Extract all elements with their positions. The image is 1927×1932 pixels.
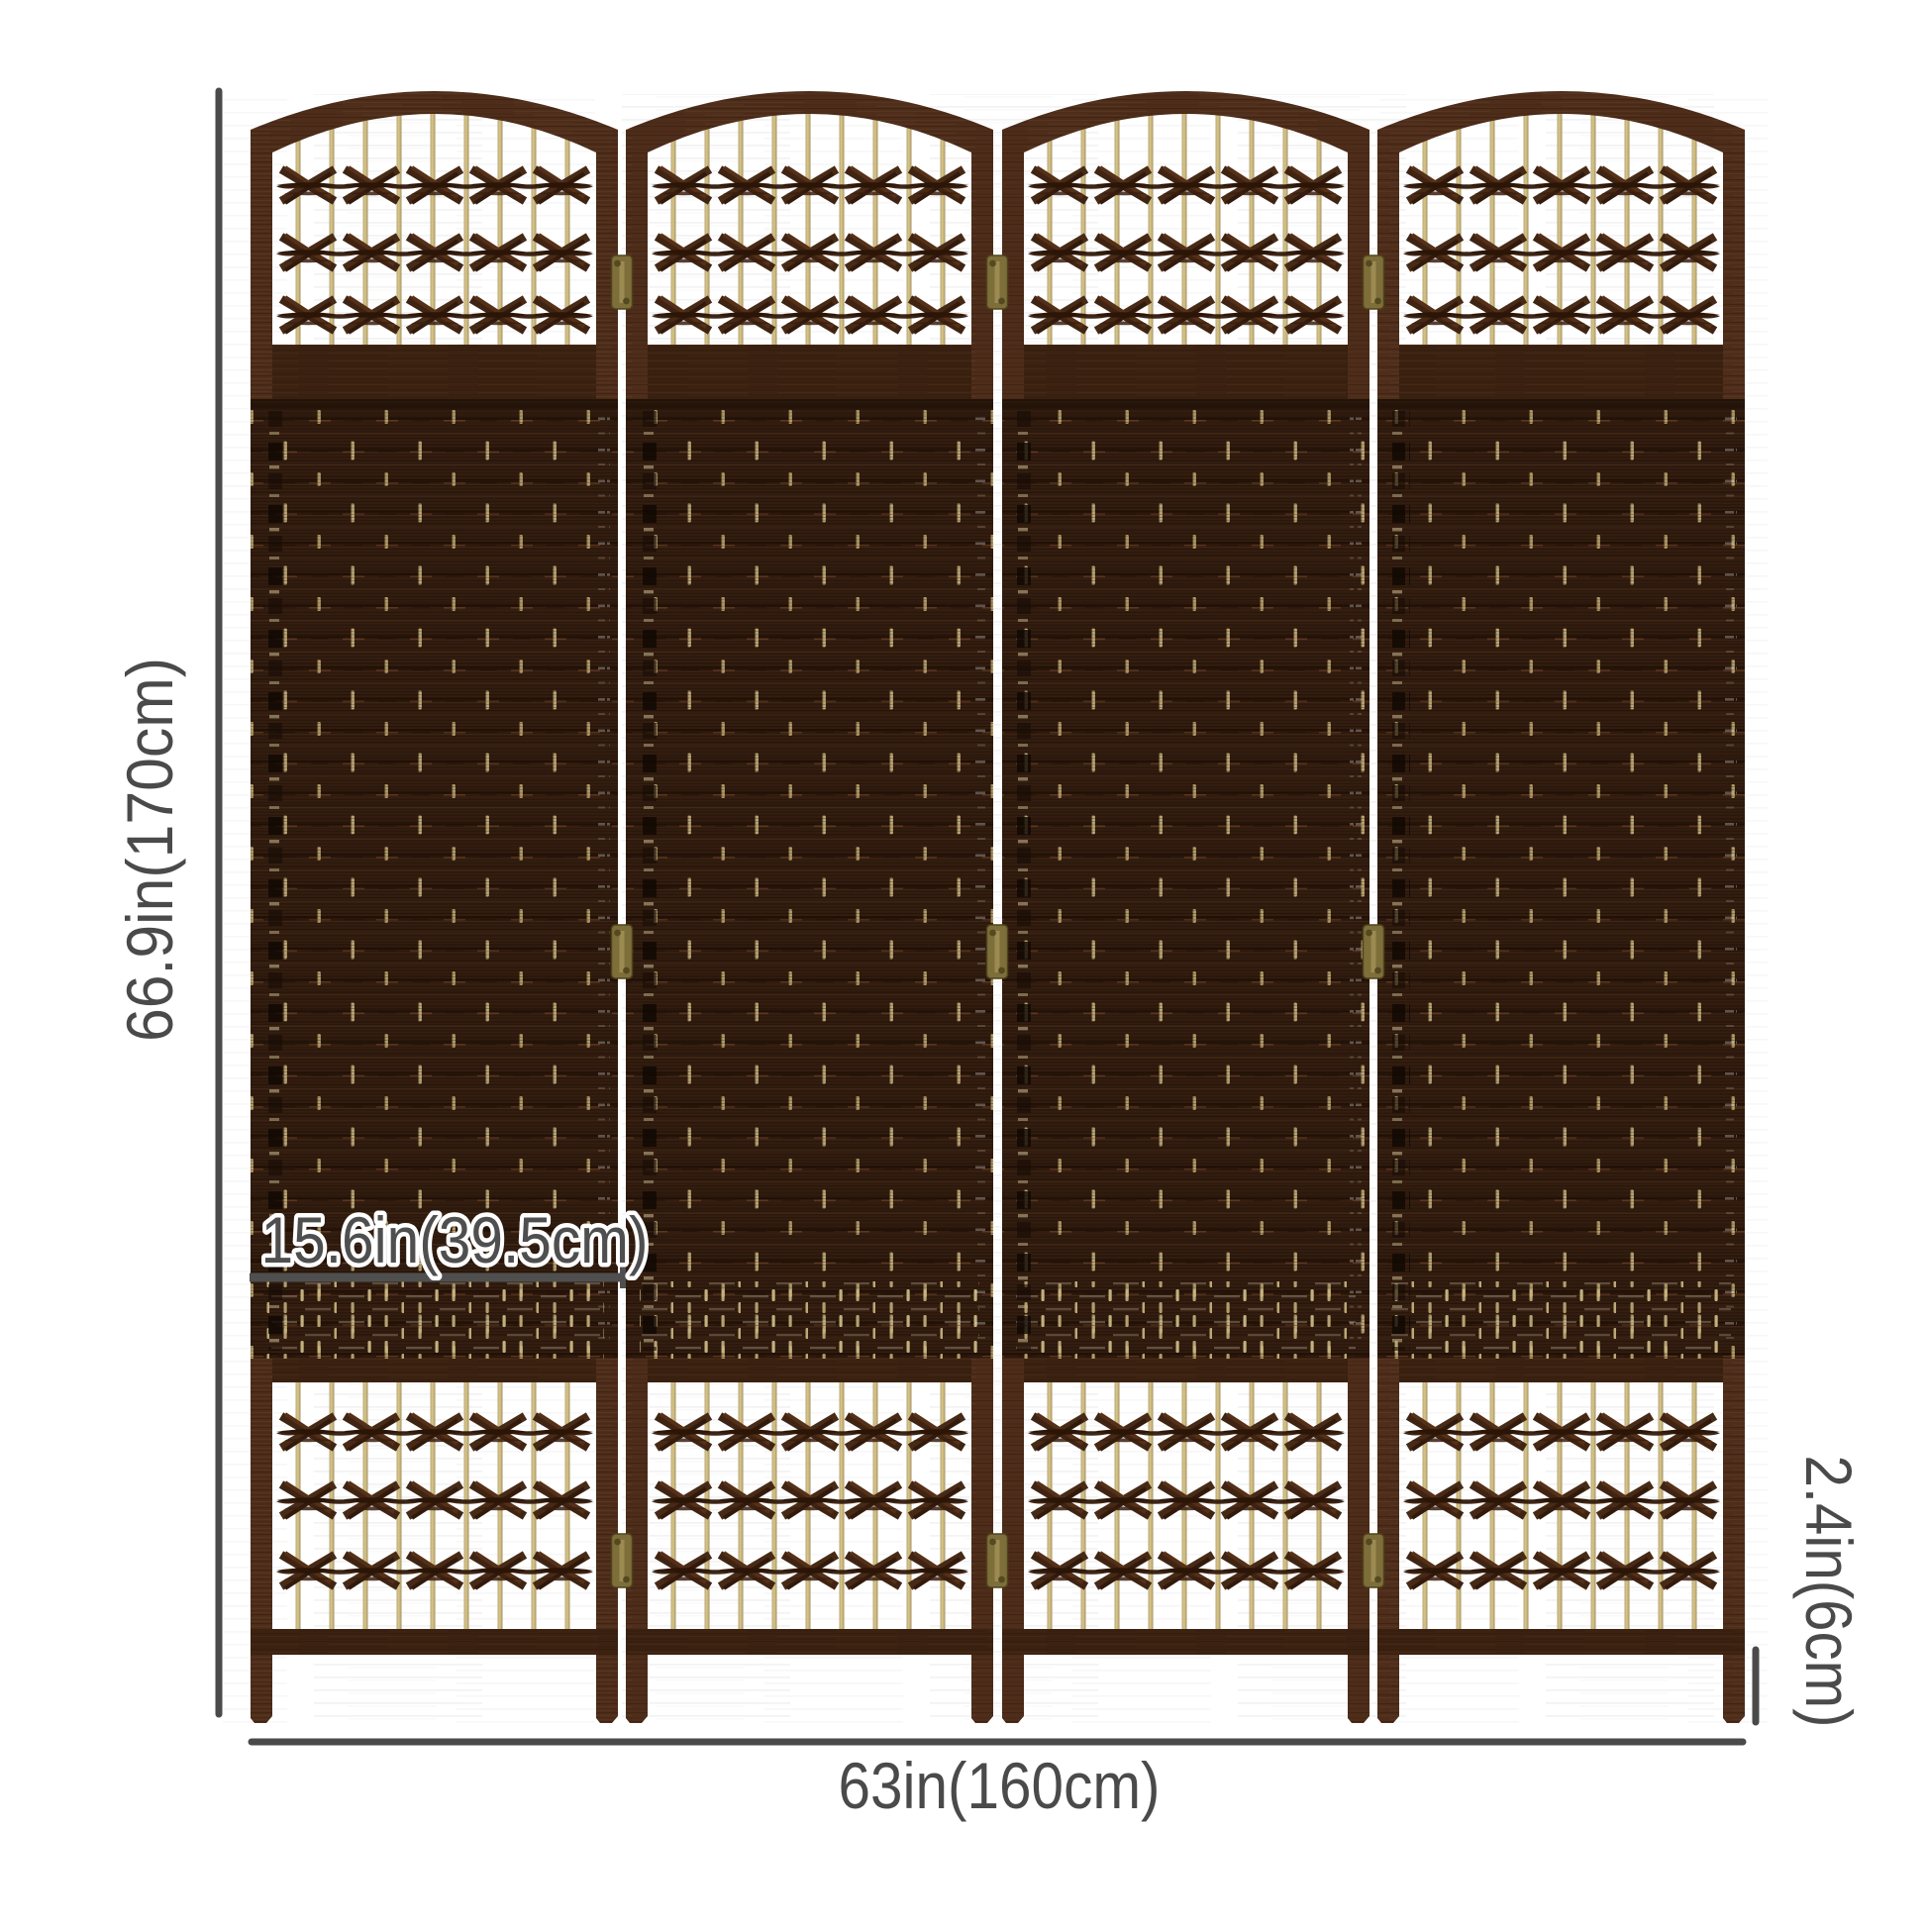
svg-text:66.9in(170cm): 66.9in(170cm) xyxy=(113,658,186,1042)
svg-text:63in(160cm): 63in(160cm) xyxy=(839,1749,1161,1822)
svg-text:2.4in(6cm): 2.4in(6cm) xyxy=(1792,1456,1866,1728)
svg-text:15.6in(39.5cm): 15.6in(39.5cm) xyxy=(261,1203,649,1276)
